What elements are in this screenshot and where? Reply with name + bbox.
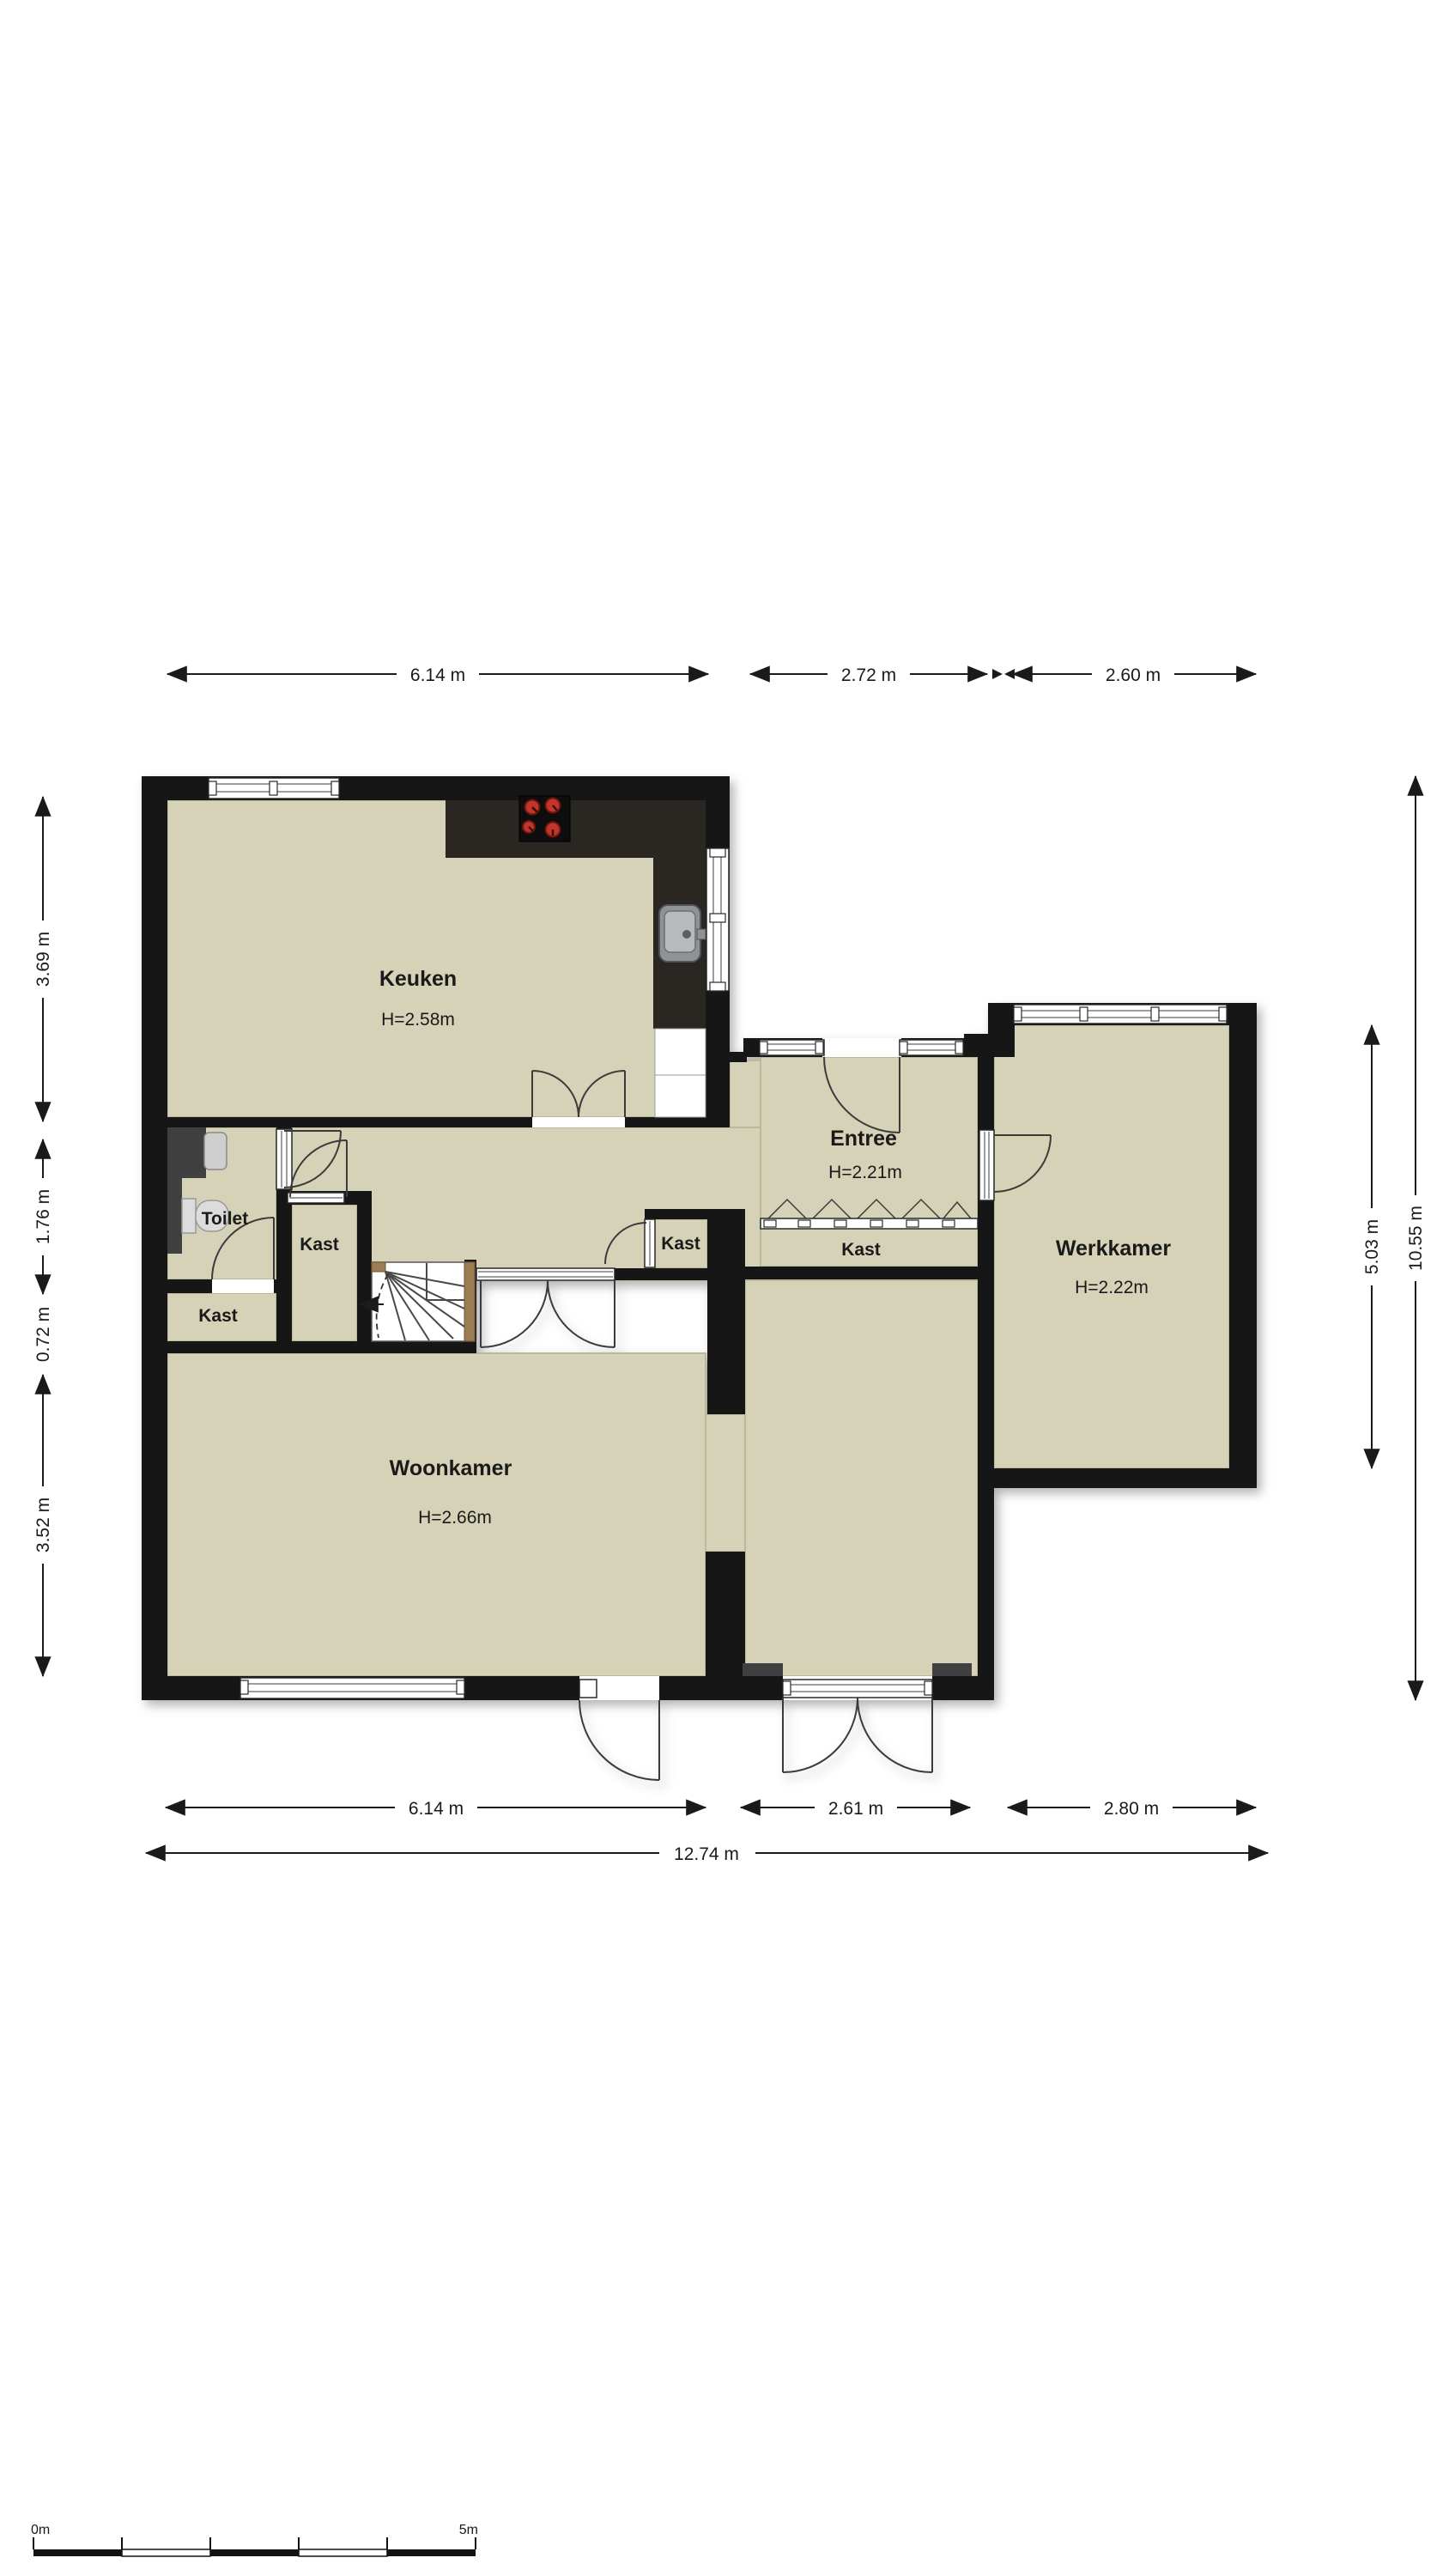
room-label-kast-left: Kast: [198, 1306, 238, 1326]
room-label-kast-entree: Kast: [841, 1240, 881, 1260]
window-toilet-door-panel: [276, 1129, 292, 1189]
window-kast-middle: [288, 1193, 344, 1203]
dim-right-1: 5.03 m: [1362, 1219, 1382, 1274]
gap-front-door: [822, 1038, 901, 1057]
room-label-toilet: Toilet: [202, 1209, 248, 1229]
wall-kitchen-bottom: [142, 1117, 730, 1127]
sill-right: [932, 1663, 972, 1676]
scale-seg-1: [33, 2549, 122, 2556]
room-label-entree: Entree: [830, 1127, 897, 1151]
dim-left-4: 3.52 m: [33, 1498, 53, 1552]
scale-seg-4: [299, 2549, 387, 2556]
floor-entree: [761, 1057, 978, 1267]
window-dining-doorframe: [783, 1680, 932, 1698]
scale-bar-end-label: 5m: [459, 2523, 478, 2537]
dim-tick-right: [992, 669, 1003, 679]
window-entree-right: [900, 1040, 963, 1055]
floor-kast-middle: [292, 1205, 357, 1341]
height-label-entree: H=2.21m: [828, 1163, 902, 1182]
scale-seg-2: [122, 2549, 210, 2556]
dim-left: 3.69 m 1.76 m 0.72 m 3.52 m: [31, 797, 55, 1676]
floorplan-canvas: Keuken H=2.58m Entree H=2.21m Werkkamer …: [0, 0, 1449, 2576]
dim-bottom-3: 2.80 m: [1104, 1799, 1159, 1819]
window-werkkamer-top: [1014, 1005, 1227, 1024]
scale-seg-3: [210, 2549, 299, 2556]
toilet-wall-strip: [167, 1178, 182, 1254]
stairs: [359, 1262, 475, 1341]
height-label-keuken: H=2.58m: [381, 1010, 455, 1030]
height-label-werkkamer: H=2.22m: [1075, 1278, 1149, 1297]
wall-pillar-lower: [706, 1552, 745, 1676]
sink-icon: [659, 905, 706, 962]
window-kitchen-top: [209, 778, 339, 799]
window-kast-small-panel: [645, 1219, 655, 1267]
dim-right-2: 10.55 m: [1406, 1206, 1426, 1271]
scale-bar-start-label: 0m: [31, 2523, 50, 2537]
wall-kast-middle-right: [357, 1191, 372, 1353]
scale-bar: 0m 5m: [31, 2523, 478, 2556]
wall-werkkamer-right: [1229, 1003, 1257, 1488]
dim-left-3: 0.72 m: [33, 1307, 53, 1362]
window-entree-left: [760, 1040, 824, 1055]
room-label-keuken: Keuken: [379, 967, 457, 991]
gap-kitchen-doubledoor: [532, 1117, 625, 1127]
dim-left-1: 3.69 m: [33, 932, 53, 987]
window-hall-band: [476, 1268, 615, 1280]
wall-pillar-upper: [707, 1209, 745, 1414]
toilet-counter: [167, 1127, 206, 1178]
floor-passage: [706, 1414, 745, 1552]
appliance-upper: [655, 1029, 706, 1075]
window-werkkamer-doorjamb: [979, 1130, 994, 1200]
sill-left: [743, 1663, 783, 1676]
stairs-wood-pivot: [372, 1262, 385, 1272]
wall-woonkamer-top-left: [167, 1341, 476, 1353]
room-label-kast-middle: Kast: [300, 1235, 339, 1255]
dim-bottom: 6.14 m 2.61 m 2.80 m 12.74 m: [146, 1795, 1268, 1865]
door-hall-woonkamer-double: [481, 1280, 615, 1347]
door-woonkamer-exit: [579, 1700, 659, 1780]
floor-dining: [745, 1280, 978, 1676]
room-label-werkkamer: Werkkamer: [1056, 1236, 1172, 1261]
wall-werkkamer-bottom: [978, 1468, 1257, 1488]
wall-hall-south: [615, 1268, 707, 1280]
height-label-woonkamer: H=2.66m: [418, 1508, 492, 1528]
wall-kast-small-top: [645, 1209, 707, 1219]
floor-notch: [730, 1060, 764, 1127]
dim-right: 5.03 m 10.55 m: [1360, 776, 1428, 1700]
room-label-kast-small: Kast: [661, 1234, 700, 1254]
dim-top-2: 2.72 m: [841, 665, 896, 685]
appliance-lower: [655, 1075, 706, 1117]
dim-top-1: 6.14 m: [410, 665, 465, 685]
room-label-woonkamer: Woonkamer: [390, 1456, 512, 1480]
wall-left: [142, 776, 167, 1700]
dim-top: 6.14 m 2.72 m 2.60 m: [167, 662, 1256, 686]
window-woonkamer-bottom: [240, 1678, 464, 1698]
stove-icon: [519, 796, 570, 841]
scale-seg-5: [387, 2549, 476, 2556]
wall-kast-entree-bottom: [707, 1267, 978, 1279]
window-woonkamer-doorsill: [579, 1680, 597, 1698]
washbasin-icon: [204, 1133, 227, 1170]
dim-top-3: 2.60 m: [1106, 665, 1161, 685]
dim-left-2: 1.76 m: [33, 1189, 53, 1244]
gap-toilet-door: [212, 1279, 274, 1293]
dim-bottom-2: 2.61 m: [828, 1799, 883, 1819]
door-dining-double-exit: [783, 1698, 932, 1772]
floorplan-page: Keuken H=2.58m Entree H=2.21m Werkkamer …: [0, 0, 1449, 2576]
dim-bottom-total: 12.74 m: [674, 1844, 739, 1864]
dim-bottom-1: 6.14 m: [409, 1799, 464, 1819]
stairs-wood-edge: [464, 1262, 475, 1341]
window-kitchen-right: [706, 848, 729, 991]
kitchen-counter-top: [446, 800, 706, 858]
